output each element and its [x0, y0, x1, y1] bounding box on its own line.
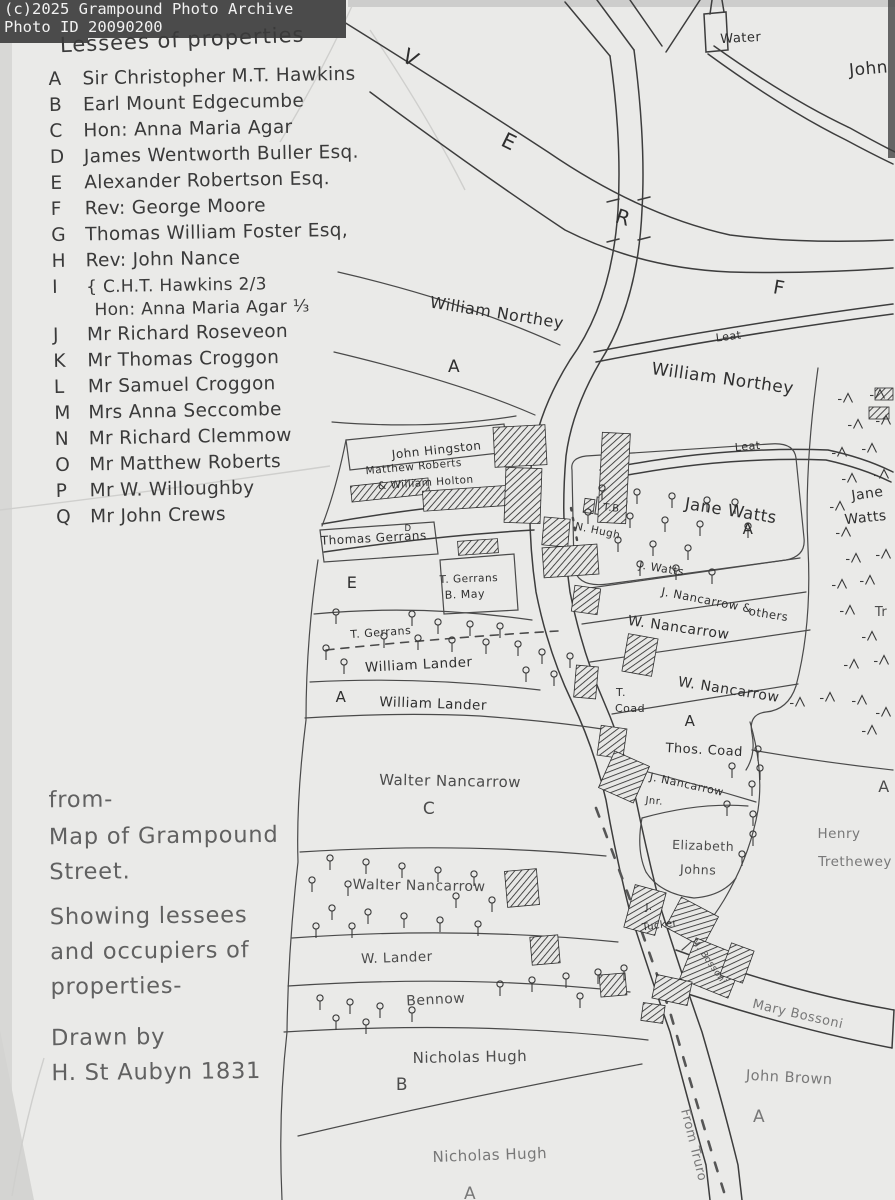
- legend-name: Mr Matthew Roberts: [89, 449, 281, 478]
- label-elizabeth-1: Elizabeth: [672, 837, 735, 854]
- label-william-lander-1: William Lander: [365, 654, 473, 676]
- legend-name: Mr Thomas Croggon: [87, 345, 279, 374]
- orchard-trees-gerrans-lander: [323, 609, 573, 686]
- label-e-field: E: [347, 573, 358, 592]
- note-line: Drawn by: [51, 1019, 281, 1056]
- note-group: Drawn by H. St Aubyn 1831: [51, 1019, 281, 1091]
- note-line: H. St Aubyn 1831: [51, 1054, 281, 1091]
- label-tb: T.B: [602, 502, 621, 515]
- label-a-lander: A: [336, 688, 347, 706]
- label-nicholas-hugh-1: Nicholas Hugh: [412, 1047, 527, 1067]
- label-j-nancarrow-jnr-2: Jnr.: [644, 795, 664, 808]
- label-bennow: Bennow: [406, 990, 466, 1009]
- map-note: from- Map of Grampound Street. Showing l…: [48, 781, 281, 1091]
- legend-name: Mr W. Willoughby: [89, 476, 254, 505]
- note-group: Map of Grampound Street.: [49, 818, 279, 890]
- legend-key: D: [50, 145, 74, 171]
- label-f-field: F: [771, 276, 786, 300]
- label-jane-strip-1: Jane: [849, 484, 884, 504]
- label-t-coad-1: T.: [615, 686, 626, 699]
- legend-name: Rev: George Moore: [85, 193, 266, 222]
- label-henry-1: Henry: [817, 826, 860, 842]
- label-william-northey-1: William Northey: [429, 293, 566, 333]
- legend-key: K: [53, 349, 77, 375]
- legend-key: C: [49, 119, 73, 145]
- label-w-lander: W. Lander: [361, 949, 433, 967]
- label-jane-strip-2: Watts: [844, 508, 888, 528]
- label-j-nancarrow-jnr-1: J. Nancarrow: [648, 770, 725, 799]
- label-a-bottom: A: [464, 1184, 476, 1200]
- label-tr-partial: Tr: [874, 605, 888, 620]
- label-from-truro: From Truro: [677, 1107, 709, 1182]
- legend-key: E: [50, 171, 74, 197]
- label-william-lander-2: William Lander: [379, 694, 487, 714]
- label-a-brown: A: [753, 1107, 765, 1127]
- label-john-top: John: [847, 57, 889, 80]
- label-william-northey-2: William Northey: [650, 359, 795, 399]
- legend-name: Alexander Robertson Esq.: [84, 166, 330, 196]
- label-t-gerrans-bmay-1: T. Gerrans: [438, 572, 498, 586]
- label-leat-1: Leat: [715, 328, 742, 344]
- legend-key: G: [51, 223, 75, 249]
- legend-name: Mr John Crews: [90, 502, 226, 530]
- label-a-jane: A: [743, 520, 754, 538]
- label-t-gerrans-strip: T. Gerrans: [349, 624, 412, 641]
- label-c-field: C: [423, 799, 435, 819]
- label-n-hugh: N. Hugh: [574, 520, 621, 541]
- note-line: Showing lessees: [50, 898, 280, 935]
- map-labels: Water John V E R F William Northey A Lea…: [320, 30, 892, 1200]
- orchard-trees-walter-nancarrow: [309, 855, 495, 938]
- orchard-trees-bennow: [317, 965, 627, 1034]
- note-group: Showing lessees and occupiers of propert…: [50, 898, 281, 1005]
- label-elizabeth-2: Johns: [679, 861, 717, 877]
- label-gerrans-sup-d: D: [404, 524, 411, 534]
- legend-key: I: [52, 275, 77, 323]
- note-line: Street.: [49, 853, 279, 890]
- label-nicholas-hugh-2: Nicholas Hugh: [432, 1144, 547, 1166]
- label-j-watts: J. Watts: [637, 558, 685, 578]
- label-j-tucker-1: J.: [644, 902, 652, 913]
- note-line: properties-: [50, 968, 280, 1005]
- legend-name: Mrs Anna Seccombe: [88, 397, 282, 426]
- legend-key: J: [53, 323, 77, 349]
- legend-key: Q: [56, 505, 80, 531]
- legend-key: F: [51, 197, 75, 223]
- legend-name: Rev: John Nance: [85, 246, 240, 275]
- legend-key: L: [54, 375, 78, 401]
- orchard-trees-east-strip: [790, 390, 891, 735]
- label-water: Water: [720, 30, 762, 47]
- label-john-brown: John Brown: [745, 1068, 833, 1089]
- label-t-coad-2: Coad: [615, 702, 645, 715]
- legend-key: O: [55, 453, 79, 479]
- legend-name: Mr Richard Roseveon: [87, 319, 288, 349]
- label-b-field: B: [396, 1075, 408, 1095]
- note-line: from-: [48, 781, 278, 818]
- legend-name: Earl Mount Edgecumbe: [83, 89, 305, 119]
- legend-name: Mr Richard Clemmow: [89, 423, 292, 453]
- legend-name: Sir Christopher M.T. Hawkins: [82, 62, 355, 93]
- label-river-e: E: [498, 128, 521, 156]
- legend-item-i: I{ C.H.T. Hawkins 2/3Hon: Anna Maria Aga…: [52, 269, 398, 323]
- label-leat-2: Leat: [734, 439, 761, 454]
- label-river-v: V: [398, 44, 423, 72]
- legend-key: P: [55, 479, 79, 505]
- legend-name: Thomas William Foster Esq,: [85, 218, 348, 249]
- legend-name: Hon: Anna Maria Agar: [83, 115, 292, 145]
- label-thos-coad: Thos. Coad: [664, 741, 743, 760]
- legend-key: N: [55, 427, 79, 453]
- legend-key: B: [49, 93, 73, 119]
- label-henry-2: Trethewey: [817, 854, 892, 870]
- label-t-gerrans-bmay-2: B. May: [445, 587, 486, 601]
- note-line: and occupiers of: [50, 933, 280, 970]
- watermark-line1: (c)2025 Grampound Photo Archive: [4, 1, 346, 19]
- legend-name: Mr Samuel Croggon: [88, 371, 276, 400]
- label-walter-nancarrow-1: Walter Nancarrow: [379, 771, 521, 791]
- label-a-henry: A: [878, 777, 889, 796]
- note-line: Map of Grampound: [49, 818, 279, 855]
- label-walter-nancarrow-2: Walter Nancarrow: [352, 877, 485, 895]
- label-a-coad: A: [685, 712, 696, 730]
- legend-key: A: [48, 67, 72, 93]
- label-river-r: R: [613, 204, 634, 231]
- legend-key: M: [54, 401, 78, 427]
- lessees-legend: Lessees of properties ASir Christopher M…: [48, 23, 402, 531]
- label-j-nancarrow-others-2: others: [748, 604, 789, 624]
- label-a-northey: A: [448, 357, 460, 377]
- legend-key: H: [51, 249, 75, 275]
- legend-name: { C.H.T. Hawkins 2/3Hon: Anna Maria Agar…: [86, 271, 310, 323]
